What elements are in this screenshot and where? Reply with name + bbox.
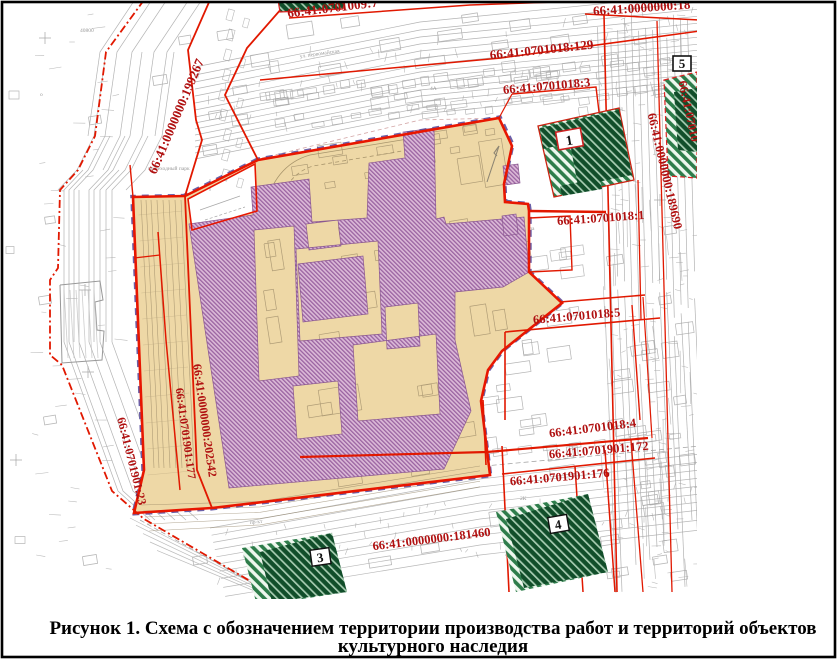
svg-text:культурного наследия: культурного наследия [338,636,528,657]
svg-text:4А: 4А [430,86,437,92]
svg-text:д: д [620,106,623,112]
svg-text:5: 5 [679,56,686,71]
svg-text:2К: 2К [520,496,527,502]
svg-text:о: о [40,92,43,98]
svg-text:40800: 40800 [80,28,94,34]
